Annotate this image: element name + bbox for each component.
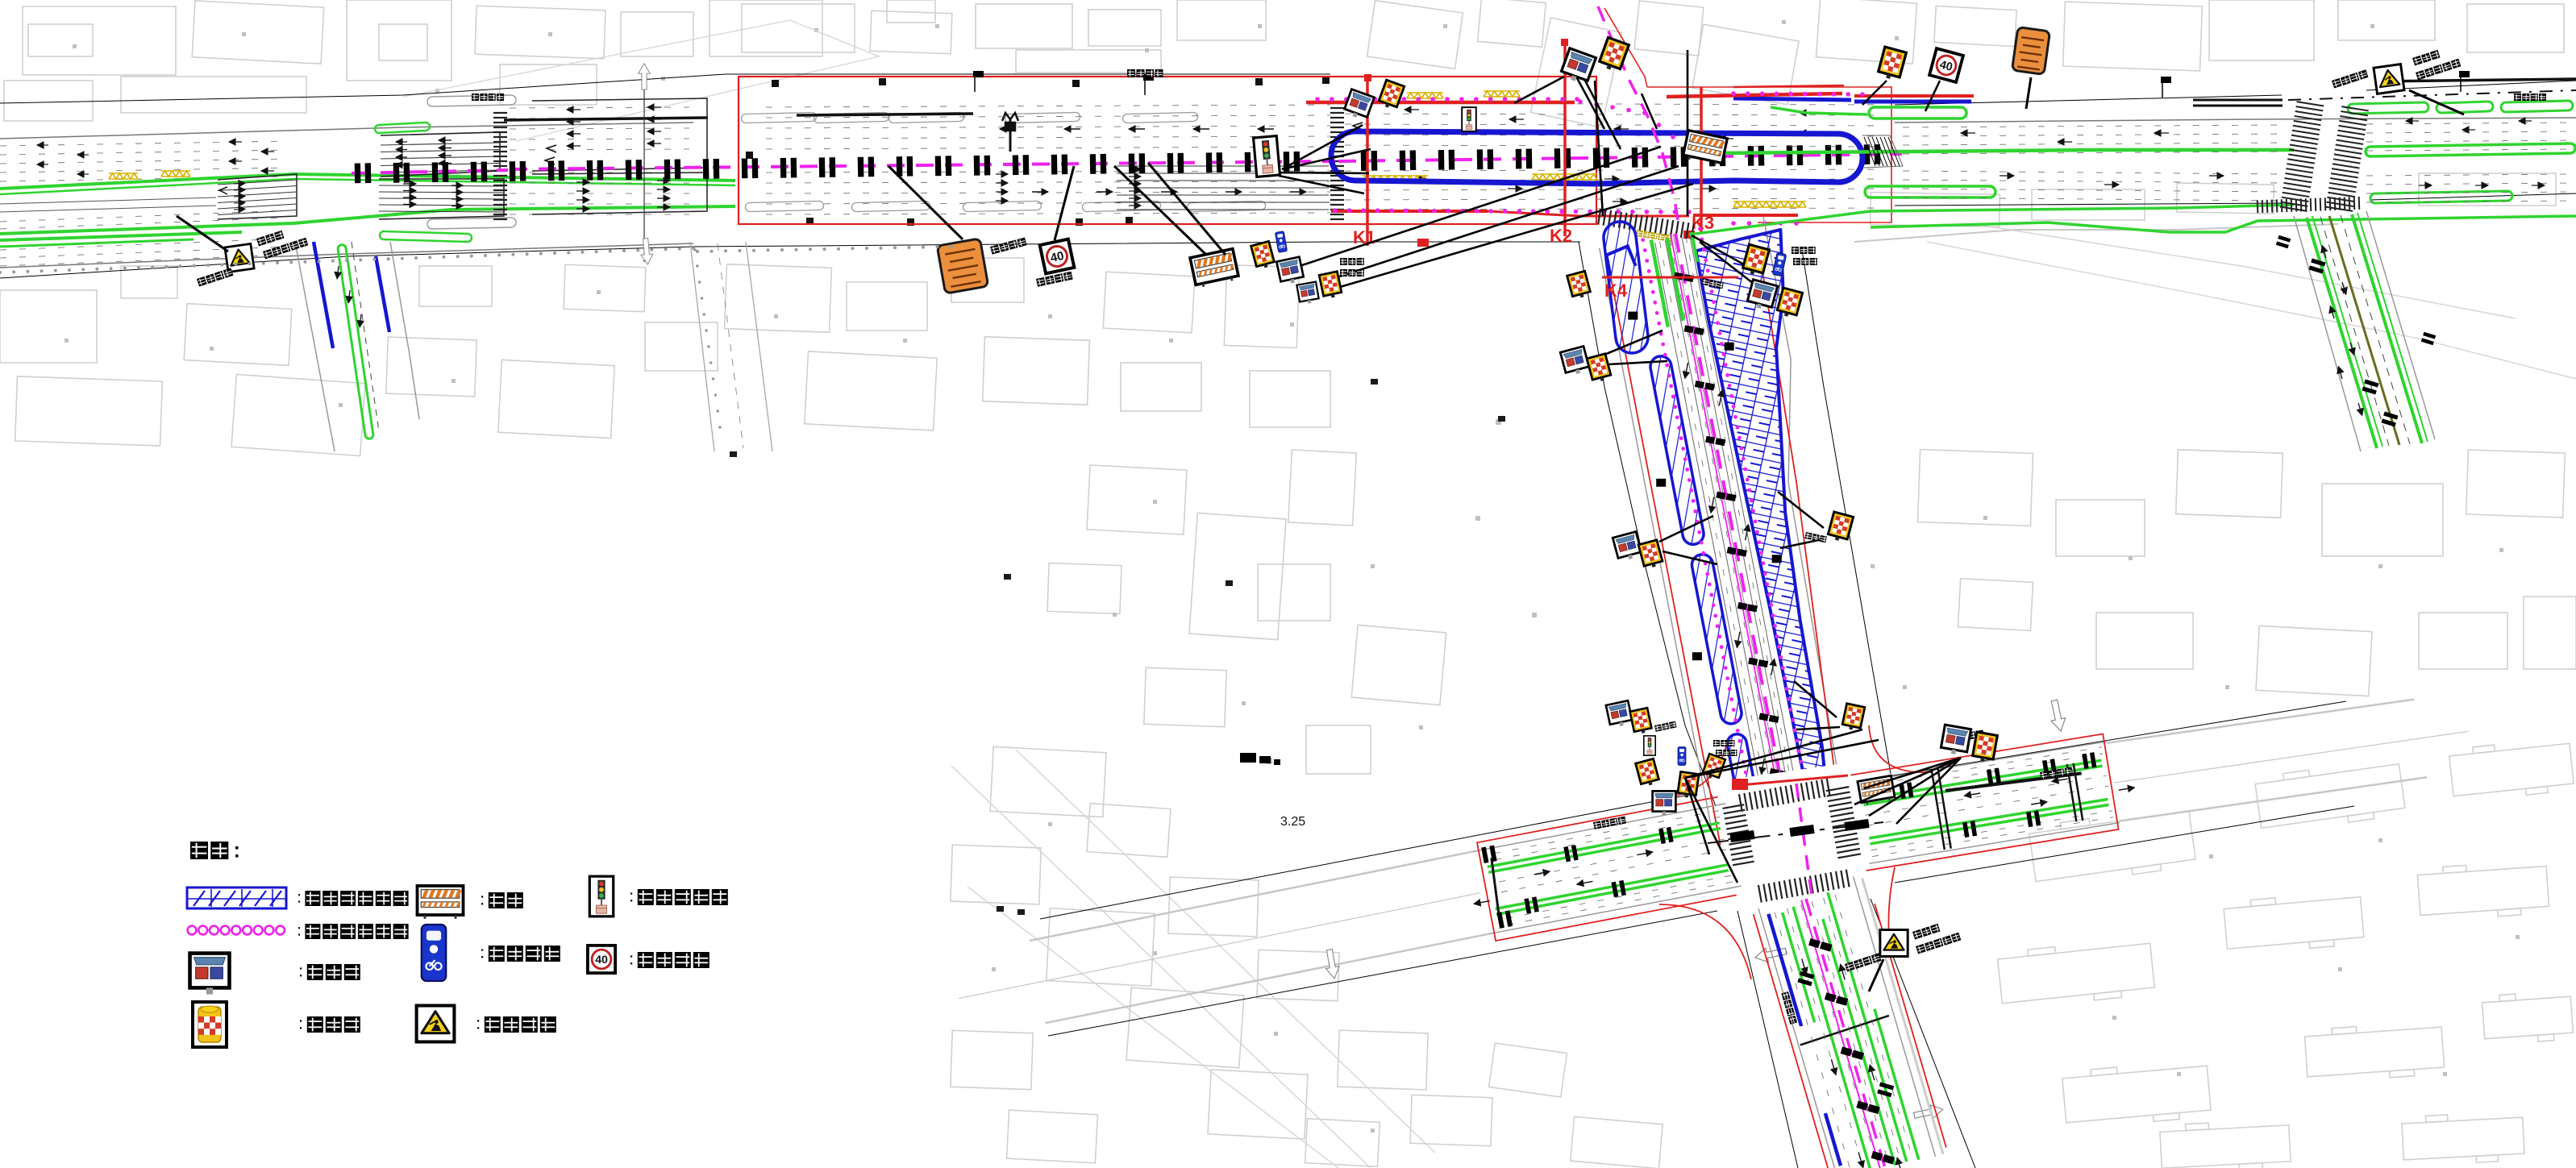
svg-text:K4: K4	[1604, 281, 1628, 301]
svg-text:3.25: 3.25	[1280, 815, 1305, 829]
svg-text:40: 40	[1049, 249, 1065, 265]
svg-text:K3: K3	[1692, 213, 1714, 233]
svg-text:40: 40	[595, 954, 608, 966]
svg-text:K2: K2	[1550, 226, 1572, 246]
